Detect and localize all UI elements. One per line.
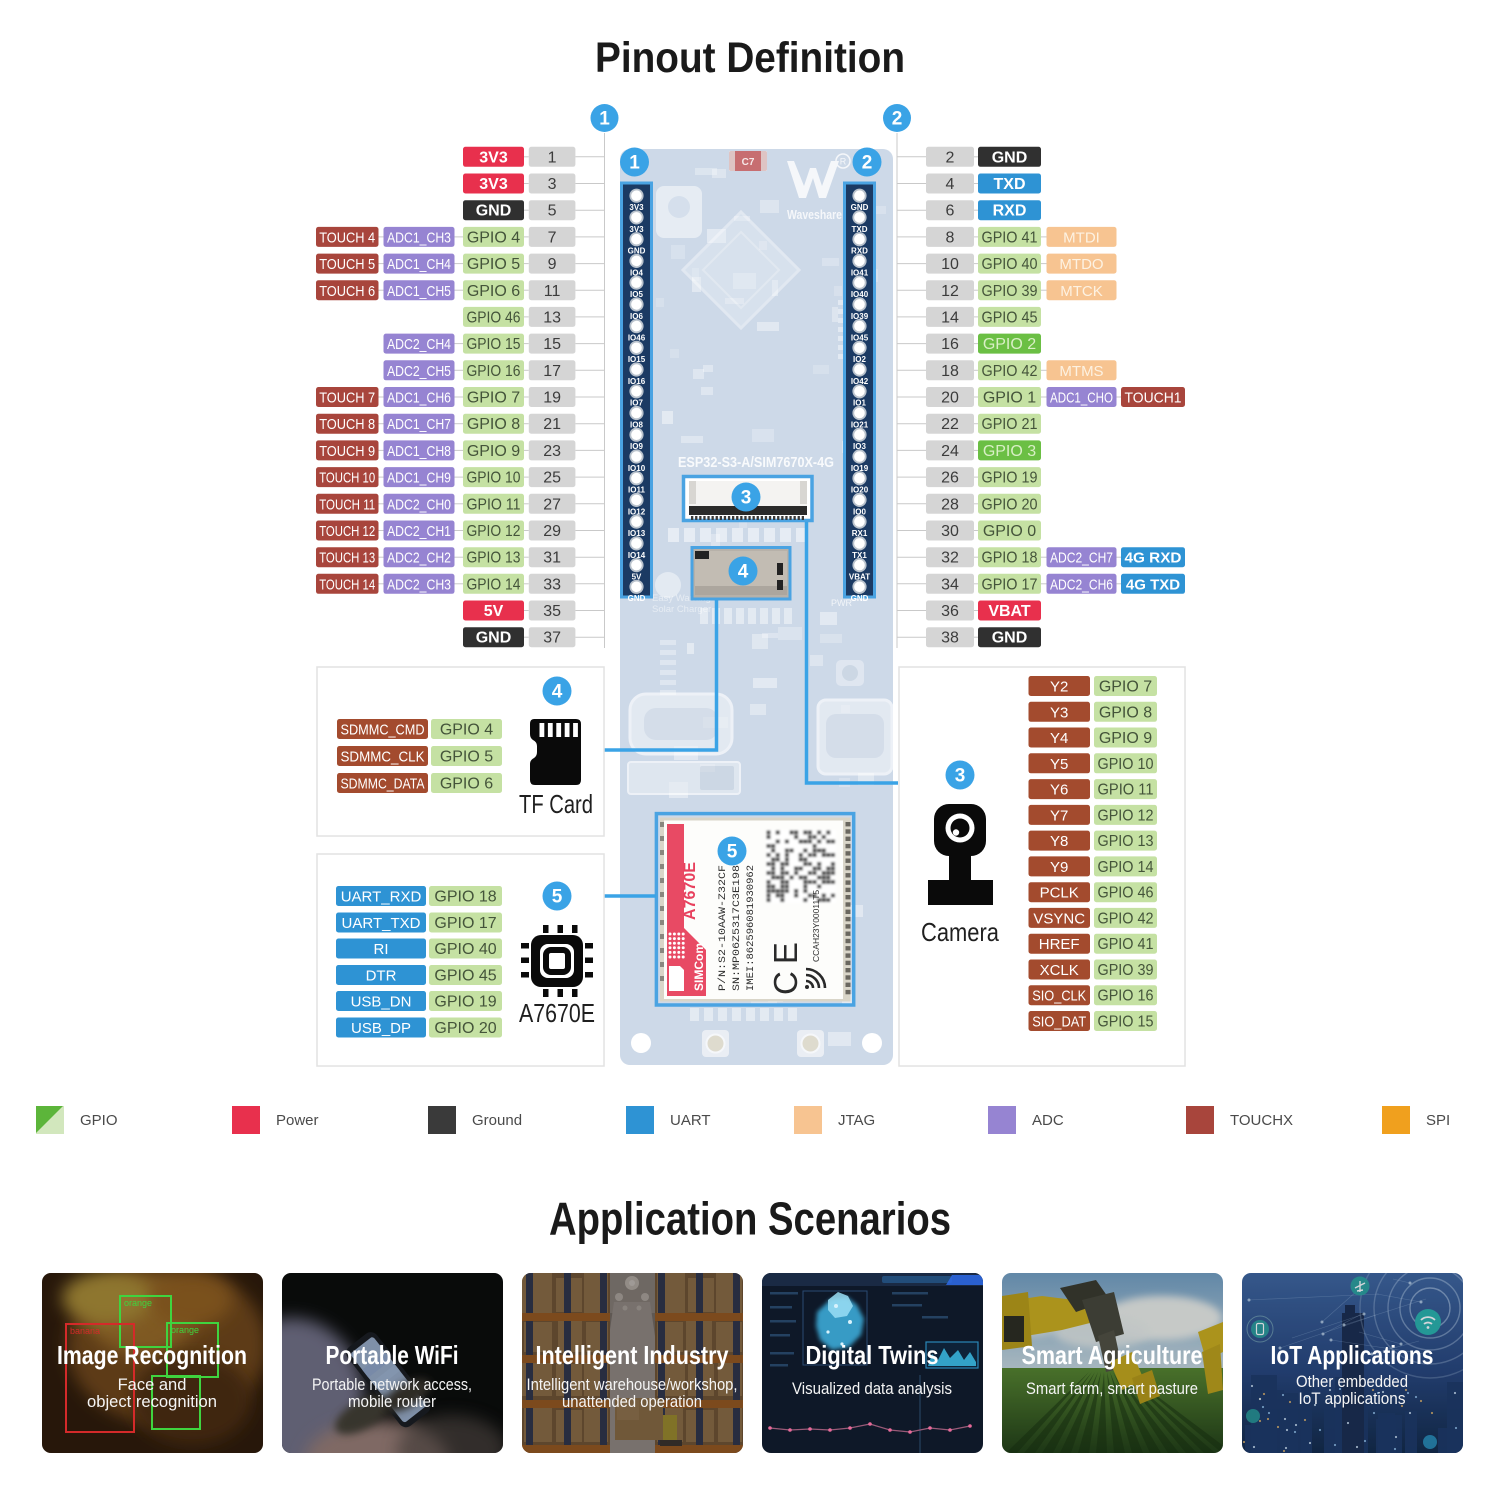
svg-text:GPIO 42: GPIO 42 (982, 363, 1038, 380)
svg-text:11: 11 (544, 283, 561, 300)
svg-text:GPIO 17: GPIO 17 (434, 915, 496, 932)
svg-text:GPIO 17: GPIO 17 (982, 576, 1038, 593)
svg-text:GPIO 15: GPIO 15 (1098, 1014, 1154, 1031)
svg-text:Digital Twins: Digital Twins (806, 1340, 939, 1370)
svg-text:GPIO 9: GPIO 9 (467, 443, 520, 460)
svg-text:GPIO 41: GPIO 41 (982, 229, 1038, 246)
svg-text:Camera: Camera (921, 917, 999, 947)
svg-text:4: 4 (738, 562, 749, 583)
svg-text:GPIO 20: GPIO 20 (434, 1020, 496, 1037)
svg-text:GPIO 3: GPIO 3 (983, 443, 1036, 460)
svg-text:unattended operation: unattended operation (562, 1393, 702, 1411)
svg-text:ADC1_CH4: ADC1_CH4 (387, 256, 451, 273)
svg-text:mobile router: mobile router (348, 1393, 436, 1411)
svg-text:TOUCH 4: TOUCH 4 (319, 229, 375, 246)
svg-text:2: 2 (862, 153, 873, 174)
svg-text:Y5: Y5 (1050, 756, 1068, 773)
svg-text:1: 1 (599, 109, 610, 130)
svg-text:TXD: TXD (994, 176, 1026, 193)
svg-text:GPIO 18: GPIO 18 (434, 889, 496, 906)
svg-text:GPIO 45: GPIO 45 (434, 968, 496, 985)
svg-text:RI: RI (374, 941, 389, 958)
svg-text:GPIO 40: GPIO 40 (982, 256, 1038, 273)
svg-text:TF Card: TF Card (519, 789, 593, 819)
svg-text:14: 14 (941, 309, 959, 326)
svg-text:Visualized data analysis: Visualized data analysis (792, 1380, 952, 1398)
svg-text:GPIO 19: GPIO 19 (982, 470, 1038, 487)
svg-text:GND: GND (851, 594, 869, 603)
svg-text:GND: GND (992, 630, 1028, 647)
svg-text:GPIO 10: GPIO 10 (467, 470, 521, 487)
svg-text:SN:MP06Z5317C3E198: SN:MP06Z5317C3E198 (731, 865, 743, 991)
svg-text:C7: C7 (742, 157, 755, 168)
svg-text:GPIO 16: GPIO 16 (1098, 988, 1154, 1005)
svg-text:16: 16 (941, 336, 959, 353)
svg-text:GPIO 13: GPIO 13 (1098, 833, 1154, 850)
svg-text:15: 15 (543, 336, 561, 353)
svg-text:CCAH23Y00011T5: CCAH23Y00011T5 (811, 890, 821, 962)
svg-text:TOUCH 8: TOUCH 8 (319, 416, 375, 433)
svg-text:P/N:S2-10AAW-Z32CF: P/N:S2-10AAW-Z32CF (717, 865, 729, 991)
svg-text:1: 1 (548, 149, 557, 166)
svg-text:32: 32 (941, 550, 959, 567)
svg-text:Face and: Face and (118, 1376, 187, 1394)
svg-text:VSYNC: VSYNC (1033, 910, 1085, 927)
svg-text:3: 3 (955, 766, 966, 787)
svg-text:Ground: Ground (472, 1112, 522, 1129)
svg-text:GPIO 20: GPIO 20 (982, 496, 1038, 513)
svg-text:12: 12 (941, 283, 959, 300)
svg-text:UART_TXD: UART_TXD (342, 915, 421, 932)
svg-text:19: 19 (543, 390, 561, 407)
svg-text:21: 21 (543, 416, 561, 433)
svg-text:4: 4 (946, 176, 955, 193)
svg-text:Y2: Y2 (1050, 679, 1068, 696)
svg-text:ADC1_CH6: ADC1_CH6 (387, 390, 451, 407)
svg-text:24: 24 (941, 443, 959, 460)
svg-text:ADC2_CH1: ADC2_CH1 (387, 523, 451, 540)
svg-text:PCLK: PCLK (1040, 885, 1079, 902)
svg-text:ADC1_CH9: ADC1_CH9 (387, 470, 451, 487)
svg-text:ADC2_CH5: ADC2_CH5 (387, 363, 451, 380)
svg-text:Solar Charger: Solar Charger (652, 604, 711, 615)
svg-text:orange: orange (124, 1298, 152, 1308)
svg-text:GPIO 7: GPIO 7 (467, 390, 520, 407)
svg-text:GND: GND (476, 203, 512, 220)
svg-text:UART_RXD: UART_RXD (341, 889, 422, 906)
svg-text:Application Scenarios: Application Scenarios (549, 1193, 951, 1245)
svg-text:SIO_CLK: SIO_CLK (1032, 988, 1086, 1005)
svg-text:GPIO 8: GPIO 8 (467, 416, 520, 433)
svg-text:TOUCH 13: TOUCH 13 (319, 550, 375, 567)
svg-text:Waveshare: Waveshare (787, 207, 842, 222)
svg-text:object recognition: object recognition (87, 1393, 217, 1411)
svg-text:TOUCH 9: TOUCH 9 (319, 443, 375, 460)
svg-text:TOUCHX: TOUCHX (1230, 1112, 1293, 1129)
svg-text:ADC2_CH4: ADC2_CH4 (387, 336, 451, 353)
svg-text:ADC2_CH7: ADC2_CH7 (1050, 550, 1113, 567)
svg-text:GND: GND (628, 594, 646, 603)
svg-text:17: 17 (543, 363, 561, 380)
svg-text:8: 8 (946, 229, 955, 246)
svg-text:ADC1_CH8: ADC1_CH8 (387, 443, 451, 460)
svg-text:GPIO 11: GPIO 11 (467, 496, 521, 513)
svg-text:13: 13 (543, 309, 561, 326)
svg-text:GPIO 4: GPIO 4 (467, 229, 520, 246)
svg-text:38: 38 (941, 630, 959, 647)
svg-text:MTMS: MTMS (1059, 363, 1103, 380)
svg-text:XCLK: XCLK (1040, 962, 1079, 979)
svg-text:ADC: ADC (1032, 1112, 1064, 1129)
svg-text:ADC1_CHO: ADC1_CHO (1050, 390, 1113, 407)
svg-text:2: 2 (892, 109, 903, 130)
svg-text:GPIO 40: GPIO 40 (434, 941, 496, 958)
svg-text:DTR: DTR (366, 968, 397, 985)
svg-text:22: 22 (941, 416, 959, 433)
svg-text:GPIO 39: GPIO 39 (982, 283, 1038, 300)
svg-text:5: 5 (727, 842, 738, 863)
svg-text:ADC2_CH0: ADC2_CH0 (387, 496, 451, 513)
svg-text:34: 34 (941, 576, 959, 593)
svg-text:TOUCH 6: TOUCH 6 (319, 283, 375, 300)
svg-text:GPIO 42: GPIO 42 (1098, 910, 1154, 927)
svg-text:GPIO 0: GPIO 0 (983, 523, 1036, 540)
svg-text:4G RXD: 4G RXD (1125, 550, 1182, 567)
svg-text:Y7: Y7 (1050, 807, 1068, 824)
svg-text:ADC2_CH2: ADC2_CH2 (387, 550, 451, 567)
svg-text:TOUCH 10: TOUCH 10 (319, 470, 375, 487)
svg-text:RXD: RXD (993, 203, 1027, 220)
svg-text:ESP32-S3-A/SIM7670X-4G: ESP32-S3-A/SIM7670X-4G (678, 454, 834, 471)
svg-text:4: 4 (552, 682, 563, 703)
svg-text:18: 18 (941, 363, 959, 380)
svg-text:MTDI: MTDI (1063, 229, 1100, 246)
svg-text:Pinout Definition: Pinout Definition (595, 34, 905, 82)
svg-text:3: 3 (741, 488, 752, 509)
svg-text:PWR: PWR (831, 598, 852, 608)
svg-text:MTDO: MTDO (1059, 256, 1103, 273)
svg-text:GPIO 9: GPIO 9 (1099, 730, 1152, 747)
svg-text:ADC1_CH3: ADC1_CH3 (387, 229, 451, 246)
svg-text:Y8: Y8 (1050, 833, 1068, 850)
svg-text:2: 2 (946, 149, 955, 166)
svg-text:IMEI:862596081930962: IMEI:862596081930962 (745, 865, 757, 991)
svg-text:23: 23 (543, 443, 561, 460)
svg-text:GPIO 11: GPIO 11 (1098, 782, 1154, 799)
svg-text:1: 1 (629, 153, 640, 174)
svg-text:Y6: Y6 (1050, 782, 1068, 799)
svg-text:HREF: HREF (1039, 936, 1080, 953)
svg-text:GPIO 13: GPIO 13 (467, 550, 521, 567)
svg-text:MTCK: MTCK (1060, 283, 1103, 300)
svg-text:6: 6 (946, 203, 955, 220)
svg-text:GPIO 12: GPIO 12 (467, 523, 521, 540)
svg-text:USB_DP: USB_DP (351, 1020, 411, 1037)
svg-text:ADC1_CH7: ADC1_CH7 (387, 416, 451, 433)
svg-text:Portable network access,: Portable network access, (312, 1376, 472, 1394)
svg-text:37: 37 (543, 630, 561, 647)
svg-text:TOUCH 14: TOUCH 14 (319, 576, 375, 593)
svg-text:GPIO 7: GPIO 7 (1099, 679, 1152, 696)
svg-text:35: 35 (543, 603, 561, 620)
svg-text:GPIO 2: GPIO 2 (983, 336, 1036, 353)
svg-text:Other embedded: Other embedded (1296, 1373, 1408, 1391)
svg-text:3V3: 3V3 (479, 176, 508, 193)
svg-text:Y9: Y9 (1050, 859, 1068, 876)
svg-text:10: 10 (941, 256, 959, 273)
svg-text:4G TXD: 4G TXD (1126, 576, 1180, 593)
svg-text:ADC2_CH6: ADC2_CH6 (1050, 576, 1113, 593)
svg-text:Y3: Y3 (1050, 704, 1068, 721)
svg-text:SIO_DAT: SIO_DAT (1032, 1014, 1086, 1031)
svg-text:GPIO 4: GPIO 4 (440, 722, 493, 739)
svg-text:3V3: 3V3 (479, 149, 508, 166)
svg-text:27: 27 (543, 496, 561, 513)
svg-text:Intelligent Industry: Intelligent Industry (536, 1340, 729, 1370)
svg-text:TOUCH1: TOUCH1 (1125, 390, 1182, 407)
svg-text:GPIO 12: GPIO 12 (1098, 807, 1154, 824)
svg-text:26: 26 (941, 470, 959, 487)
svg-text:GPIO 19: GPIO 19 (434, 994, 496, 1011)
svg-text:31: 31 (543, 550, 561, 567)
svg-text:SDMMC_CMD: SDMMC_CMD (341, 722, 425, 739)
svg-text:GPIO 46: GPIO 46 (467, 309, 521, 326)
svg-text:Smart Agriculture: Smart Agriculture (1022, 1340, 1203, 1370)
svg-text:TOUCH 5: TOUCH 5 (319, 256, 375, 273)
svg-text:Portable WiFi: Portable WiFi (326, 1340, 459, 1370)
svg-text:36: 36 (941, 603, 959, 620)
svg-text:20: 20 (941, 390, 959, 407)
svg-text:GPIO 5: GPIO 5 (467, 256, 520, 273)
svg-text:GND: GND (476, 630, 512, 647)
svg-text:A7670E: A7670E (680, 862, 699, 920)
svg-text:GPIO 8: GPIO 8 (1099, 704, 1152, 721)
svg-text:GPIO 6: GPIO 6 (467, 283, 520, 300)
svg-text:VBAT: VBAT (988, 603, 1031, 620)
svg-text:7: 7 (548, 229, 557, 246)
svg-text:5: 5 (548, 203, 557, 220)
svg-text:3: 3 (548, 176, 557, 193)
svg-text:Y4: Y4 (1050, 730, 1068, 747)
svg-text:Power: Power (276, 1112, 319, 1129)
svg-text:5V: 5V (484, 603, 504, 620)
svg-text:USB_DN: USB_DN (351, 994, 412, 1011)
svg-text:IoT applications: IoT applications (1299, 1390, 1406, 1408)
svg-text:GPIO 5: GPIO 5 (440, 749, 493, 766)
svg-text:GND: GND (992, 149, 1028, 166)
svg-text:33: 33 (543, 576, 561, 593)
svg-text:TOUCH 7: TOUCH 7 (319, 390, 375, 407)
svg-text:GPIO 41: GPIO 41 (1098, 936, 1154, 953)
svg-text:ADC1_CH5: ADC1_CH5 (387, 283, 451, 300)
svg-text:GPIO: GPIO (80, 1112, 118, 1129)
svg-text:GPIO 45: GPIO 45 (982, 309, 1038, 326)
svg-text:CE: CE (767, 935, 804, 995)
svg-text:GPIO 14: GPIO 14 (1098, 859, 1154, 876)
svg-text:UART: UART (670, 1112, 711, 1129)
svg-text:GPIO 15: GPIO 15 (467, 336, 521, 353)
svg-text:9: 9 (548, 256, 557, 273)
svg-text:orange: orange (171, 1325, 199, 1335)
svg-text:GPIO 10: GPIO 10 (1098, 756, 1154, 773)
svg-text:Smart farm, smart pasture: Smart farm, smart pasture (1026, 1380, 1198, 1398)
svg-text:GPIO 46: GPIO 46 (1098, 885, 1154, 902)
svg-text:GPIO 6: GPIO 6 (440, 776, 493, 793)
svg-text:25: 25 (543, 470, 561, 487)
svg-text:GPIO 18: GPIO 18 (982, 550, 1038, 567)
svg-text:ADC2_CH3: ADC2_CH3 (387, 576, 451, 593)
svg-text:Intelligent warehouse/workshop: Intelligent warehouse/workshop, (527, 1376, 738, 1394)
svg-text:GPIO 39: GPIO 39 (1098, 962, 1154, 979)
svg-text:GPIO 16: GPIO 16 (467, 363, 521, 380)
svg-text:TOUCH 12: TOUCH 12 (319, 523, 375, 540)
svg-text:SIMCom: SIMCom (692, 943, 706, 991)
svg-text:Image Recognition: Image Recognition (57, 1340, 247, 1370)
svg-text:JTAG: JTAG (838, 1112, 875, 1129)
svg-text:SPI: SPI (1426, 1112, 1450, 1129)
svg-text:R: R (840, 157, 847, 167)
svg-text:28: 28 (941, 496, 959, 513)
svg-text:banana: banana (70, 1326, 100, 1336)
svg-text:29: 29 (543, 523, 561, 540)
svg-text:GPIO 14: GPIO 14 (467, 576, 521, 593)
svg-text:SDMMC_DATA: SDMMC_DATA (341, 776, 425, 793)
svg-text:GPIO 1: GPIO 1 (983, 390, 1036, 407)
svg-text:30: 30 (941, 523, 959, 540)
svg-text:SDMMC_CLK: SDMMC_CLK (341, 749, 425, 766)
svg-text:5: 5 (552, 887, 563, 908)
svg-text:A7670E: A7670E (519, 998, 595, 1028)
svg-text:TOUCH 11: TOUCH 11 (319, 496, 375, 513)
svg-text:GPIO 21: GPIO 21 (982, 416, 1038, 433)
svg-text:IoT Applications: IoT Applications (1271, 1340, 1434, 1370)
